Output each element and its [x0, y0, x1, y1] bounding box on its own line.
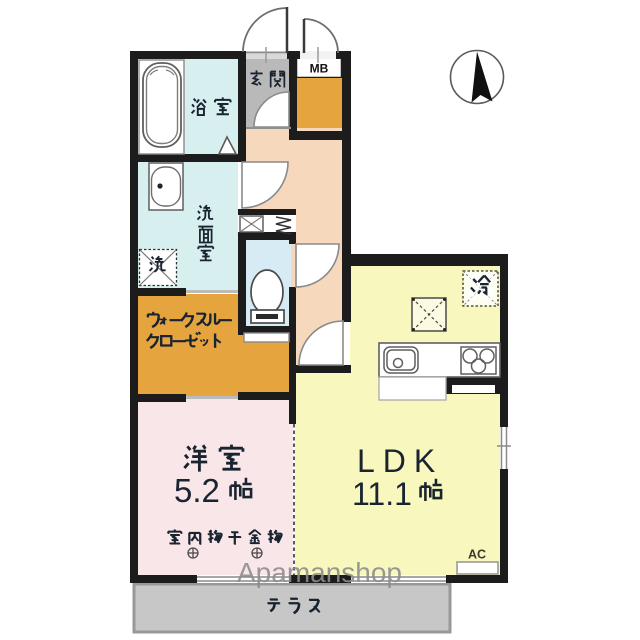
- svg-text:5.2: 5.2: [174, 472, 220, 509]
- svg-text:LDK: LDK: [357, 443, 443, 479]
- svg-text:Apamanshop: Apamanshop: [237, 557, 402, 588]
- svg-text:MB: MB: [310, 62, 329, 76]
- svg-text:11.1: 11.1: [352, 476, 412, 512]
- svg-text:AC: AC: [468, 548, 486, 562]
